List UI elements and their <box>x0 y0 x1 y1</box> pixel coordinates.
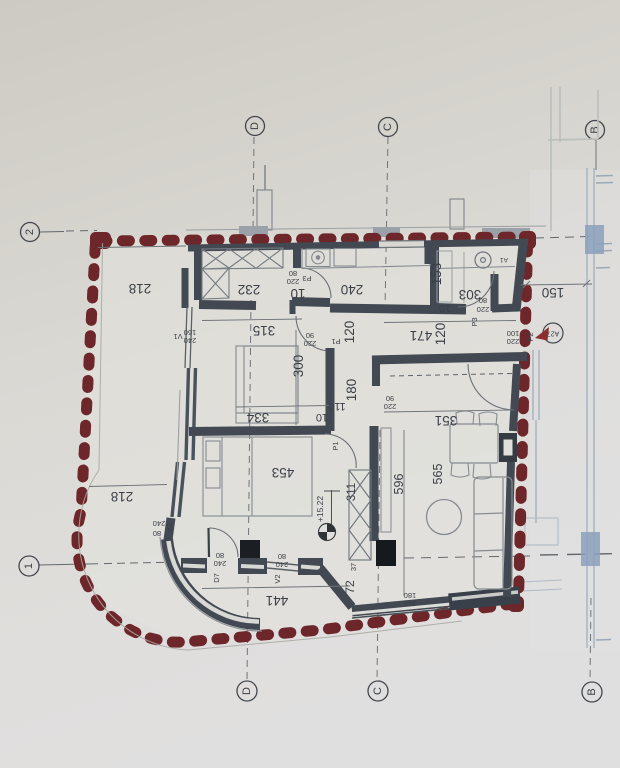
svg-text:220: 220 <box>507 337 520 346</box>
svg-text:180: 180 <box>404 591 417 600</box>
svg-text:110: 110 <box>328 400 346 412</box>
svg-text:C: C <box>372 687 384 695</box>
svg-text:315: 315 <box>253 323 276 338</box>
svg-text:220: 220 <box>304 339 317 348</box>
svg-text:90: 90 <box>306 331 314 340</box>
svg-text:300: 300 <box>291 355 306 378</box>
svg-text:220: 220 <box>477 305 490 314</box>
svg-text:10: 10 <box>316 411 328 423</box>
svg-text:240: 240 <box>184 336 197 345</box>
svg-text:2: 2 <box>24 229 36 235</box>
svg-text:V1: V1 <box>173 332 182 341</box>
svg-text:90: 90 <box>386 394 394 403</box>
svg-text:37: 37 <box>349 563 358 571</box>
svg-text:596: 596 <box>392 474 406 495</box>
svg-text:334: 334 <box>246 410 269 425</box>
svg-text:V2: V2 <box>165 523 174 532</box>
svg-text:C: C <box>382 123 394 131</box>
svg-text:160: 160 <box>184 328 197 337</box>
svg-text:P2: P2 <box>526 332 535 341</box>
svg-text:441: 441 <box>266 593 289 608</box>
svg-text:471: 471 <box>410 328 433 343</box>
svg-text:10: 10 <box>439 302 451 314</box>
svg-text:80: 80 <box>479 296 487 305</box>
svg-text:10: 10 <box>290 286 305 301</box>
svg-text:72: 72 <box>343 580 357 594</box>
svg-text:220: 220 <box>287 277 300 286</box>
svg-text:220: 220 <box>384 402 397 411</box>
svg-text:240: 240 <box>404 599 417 608</box>
svg-text:120: 120 <box>433 323 448 346</box>
svg-text:D: D <box>249 122 261 130</box>
svg-text:240: 240 <box>214 559 227 568</box>
svg-text:D7: D7 <box>212 573 221 583</box>
svg-text:218: 218 <box>129 281 152 296</box>
svg-text:351: 351 <box>435 413 458 428</box>
svg-text:1: 1 <box>23 563 35 569</box>
svg-text:180: 180 <box>344 379 359 402</box>
svg-text:A1: A1 <box>500 256 508 263</box>
svg-text:80: 80 <box>216 551 224 560</box>
svg-text:120: 120 <box>342 321 357 344</box>
svg-text:218: 218 <box>111 489 134 504</box>
svg-text:P3: P3 <box>302 274 311 283</box>
svg-text:240: 240 <box>276 560 289 569</box>
svg-text:453: 453 <box>272 465 295 480</box>
svg-text:311: 311 <box>346 483 358 501</box>
svg-text:150: 150 <box>542 285 565 300</box>
svg-text:P3: P3 <box>470 317 479 326</box>
svg-text:+15.22: +15.22 <box>315 496 325 523</box>
svg-text:240: 240 <box>341 282 364 297</box>
svg-text:80: 80 <box>278 552 286 561</box>
svg-text:153: 153 <box>429 263 444 286</box>
svg-text:V2: V2 <box>273 574 282 583</box>
svg-text:100: 100 <box>507 329 520 338</box>
svg-text:80: 80 <box>289 269 297 278</box>
svg-text:80: 80 <box>153 529 161 538</box>
svg-text:D: D <box>241 687 253 695</box>
svg-text:B: B <box>586 688 598 695</box>
svg-text:P1: P1 <box>331 337 340 346</box>
svg-text:303: 303 <box>459 287 482 302</box>
svg-text:240: 240 <box>153 519 166 528</box>
svg-text:P1: P1 <box>331 441 340 450</box>
svg-text:232: 232 <box>238 282 261 297</box>
svg-text:B: B <box>589 126 601 133</box>
svg-text:565: 565 <box>431 464 445 485</box>
